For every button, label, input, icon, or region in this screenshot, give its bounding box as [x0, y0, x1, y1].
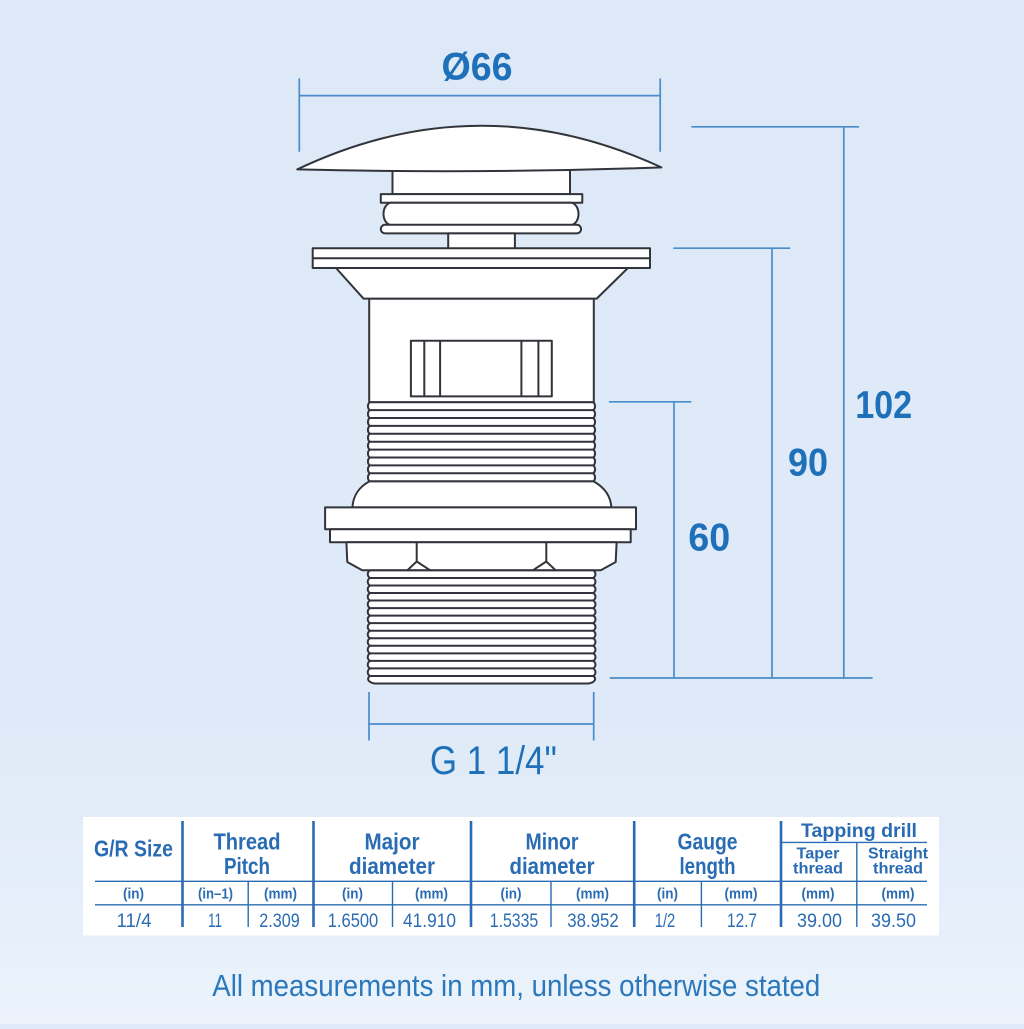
svg-text:(mm): (mm) — [576, 886, 609, 903]
svg-text:(mm): (mm) — [882, 886, 915, 903]
svg-text:11/4: 11/4 — [117, 910, 152, 932]
svg-text:Tapping drill: Tapping drill — [801, 821, 917, 842]
svg-text:G 1 1/4": G 1 1/4" — [430, 739, 557, 783]
svg-text:diameter: diameter — [349, 853, 435, 879]
svg-text:All measurements in mm, unless: All measurements in mm, unless otherwise… — [212, 968, 820, 1003]
svg-text:11: 11 — [208, 910, 222, 932]
svg-text:1/2: 1/2 — [655, 910, 676, 932]
svg-text:1.6500: 1.6500 — [328, 910, 379, 932]
svg-text:60: 60 — [688, 517, 730, 560]
svg-text:2.309: 2.309 — [259, 910, 300, 932]
svg-text:Ø66: Ø66 — [442, 46, 513, 89]
svg-text:(in): (in) — [123, 886, 144, 903]
svg-text:39.50: 39.50 — [871, 910, 916, 932]
svg-text:thread: thread — [873, 861, 923, 878]
svg-text:102: 102 — [855, 384, 912, 427]
svg-text:(mm): (mm) — [725, 886, 758, 903]
svg-text:(mm): (mm) — [802, 886, 835, 903]
svg-text:G/R Size: G/R Size — [94, 835, 173, 861]
svg-text:Pitch: Pitch — [224, 853, 270, 879]
svg-text:90: 90 — [788, 442, 828, 485]
svg-text:Minor: Minor — [526, 829, 579, 855]
svg-text:(in): (in) — [657, 886, 678, 903]
svg-text:1.5335: 1.5335 — [490, 910, 539, 932]
svg-text:Gauge: Gauge — [678, 829, 738, 855]
svg-text:(mm): (mm) — [264, 886, 297, 903]
svg-text:41.910: 41.910 — [403, 910, 456, 932]
svg-text:12.7: 12.7 — [727, 910, 757, 932]
svg-text:Thread: Thread — [214, 829, 281, 855]
svg-text:diameter: diameter — [510, 853, 595, 879]
svg-text:length: length — [680, 853, 736, 879]
svg-text:thread: thread — [793, 861, 843, 878]
svg-text:(in): (in) — [501, 886, 522, 903]
svg-text:(in–1): (in–1) — [198, 886, 233, 903]
svg-text:(mm): (mm) — [415, 886, 448, 903]
svg-text:Major: Major — [365, 829, 420, 855]
svg-text:(in): (in) — [342, 886, 363, 903]
svg-text:38.952: 38.952 — [567, 910, 619, 932]
svg-text:39.00: 39.00 — [797, 910, 842, 932]
